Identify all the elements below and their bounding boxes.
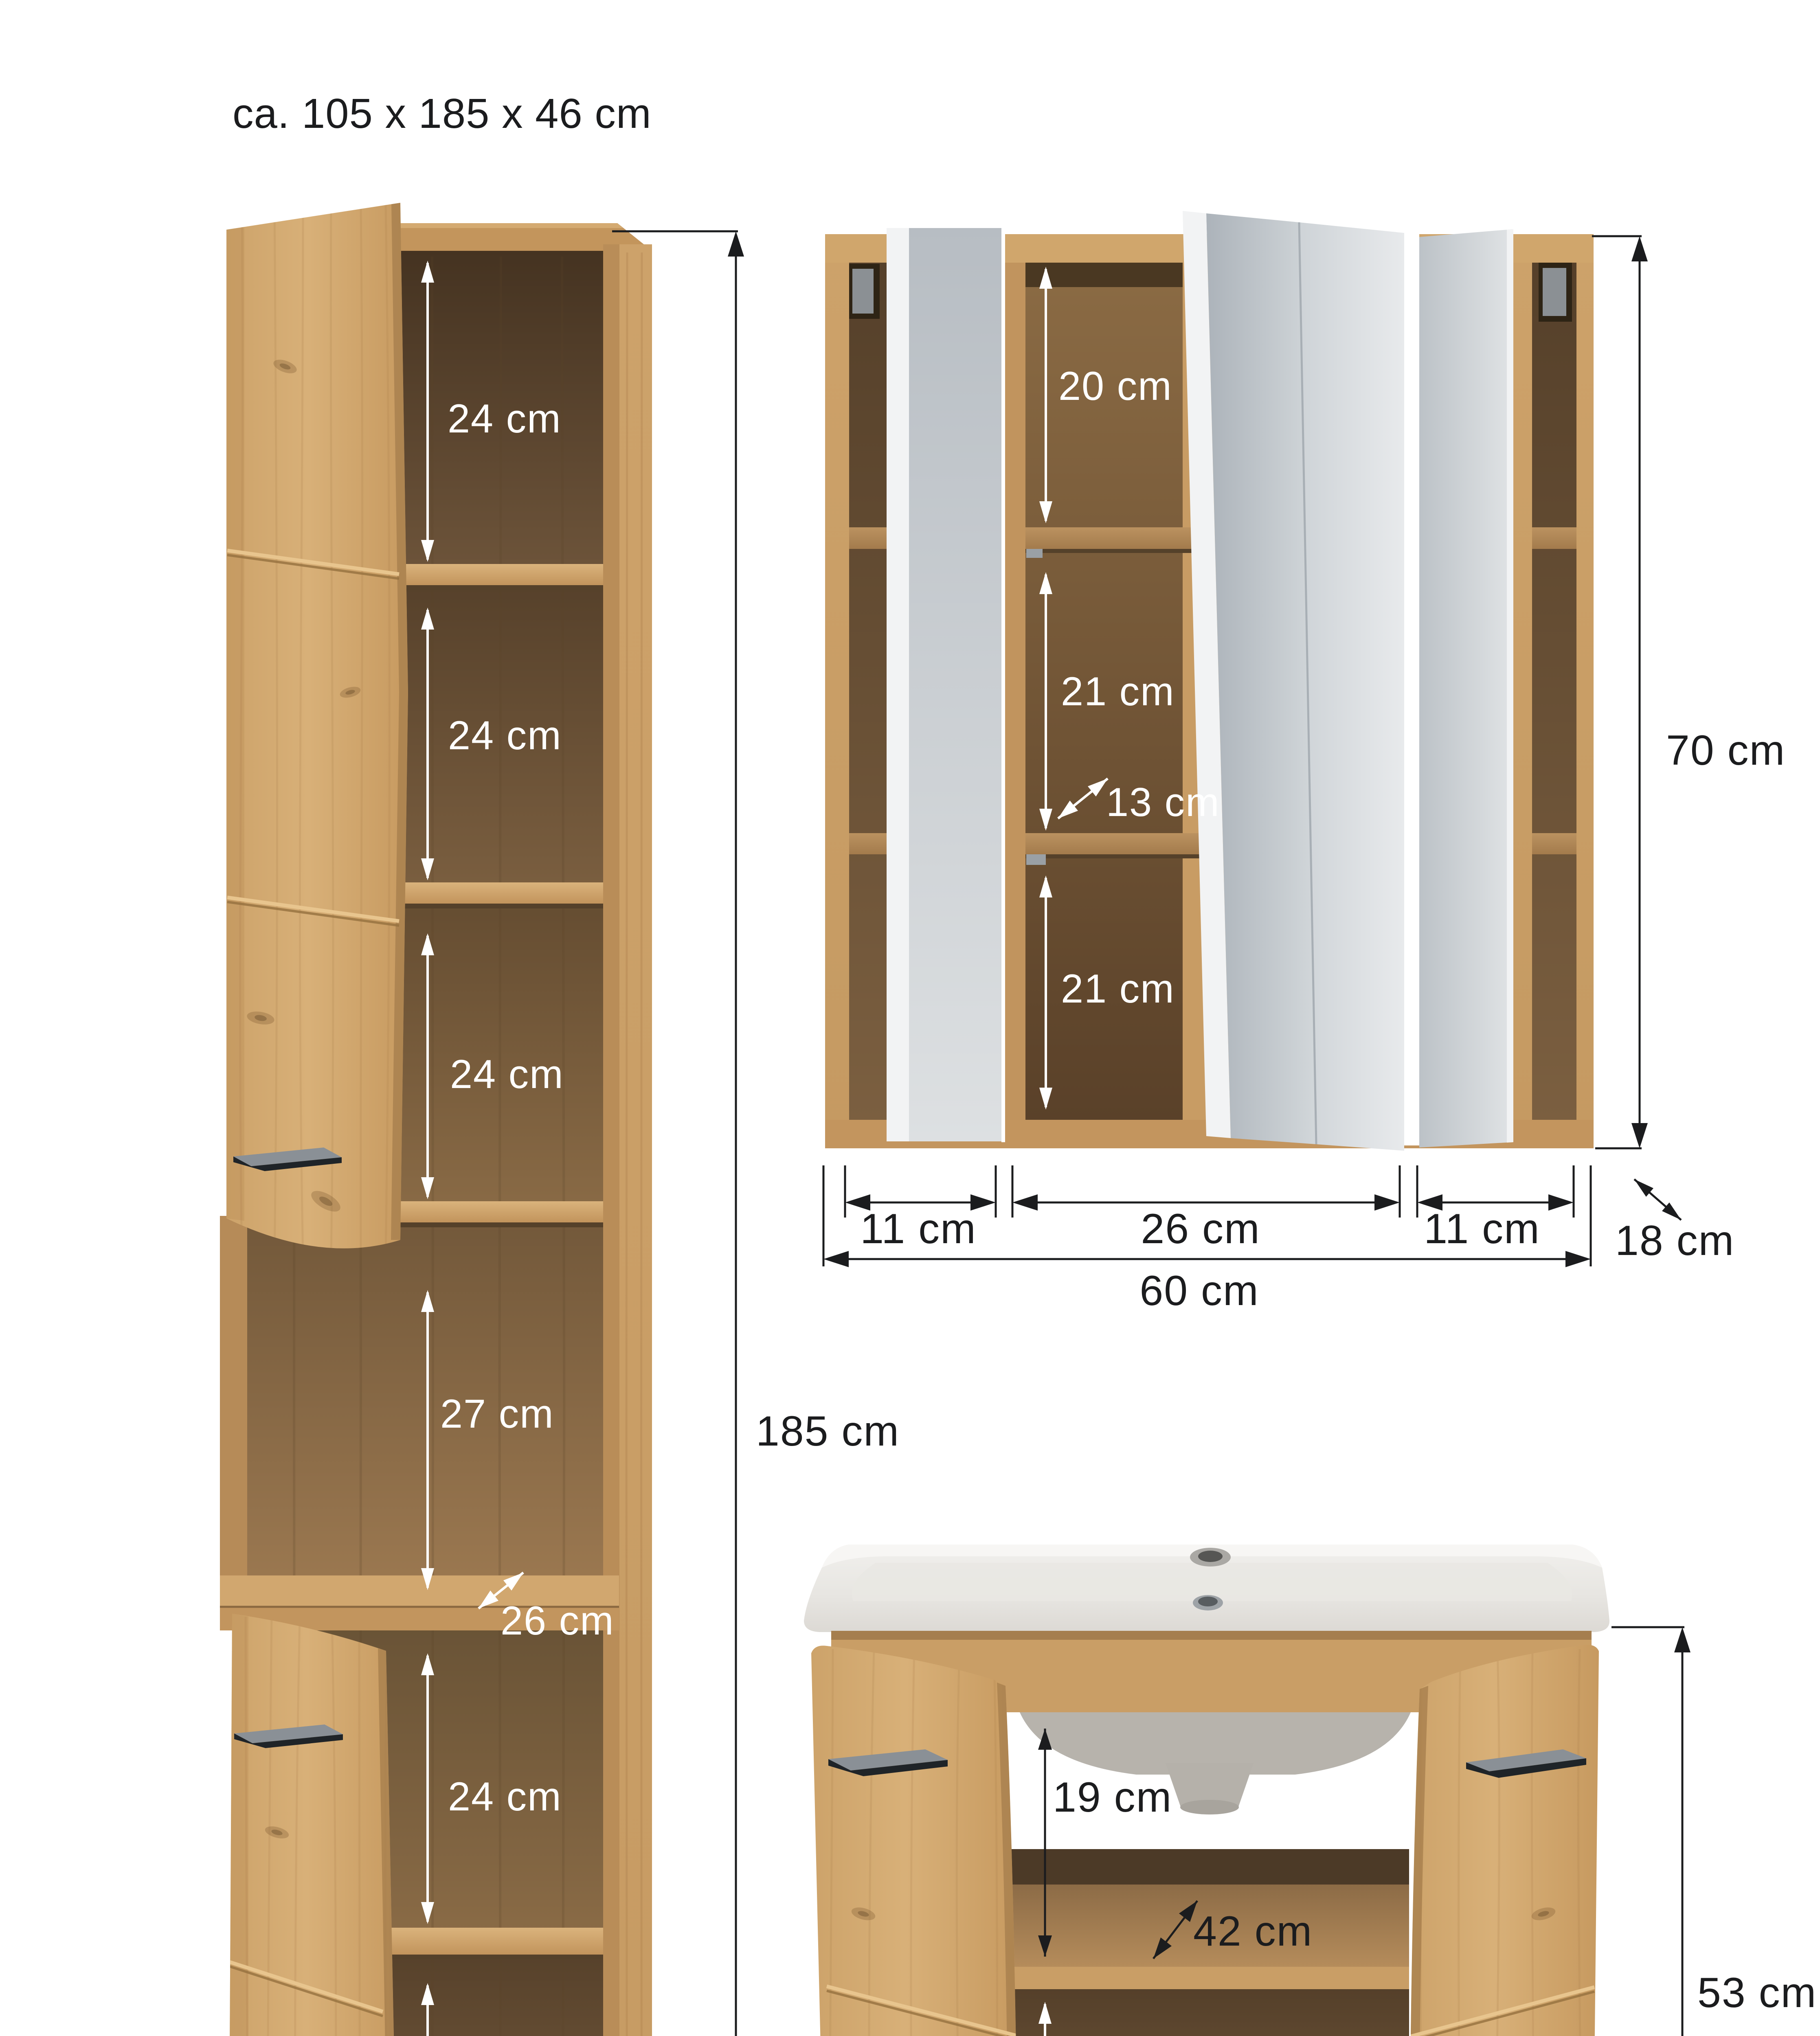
svg-text:26 cm: 26 cm [1141,1205,1260,1253]
svg-text:21 cm: 21 cm [1061,669,1175,714]
svg-text:11 cm: 11 cm [860,1205,977,1253]
svg-text:185 cm: 185 cm [756,1408,900,1455]
svg-text:21 cm: 21 cm [1061,966,1175,1011]
svg-text:26 cm: 26 cm [501,1598,615,1643]
svg-text:13 cm: 13 cm [1106,779,1220,825]
svg-text:27 cm: 27 cm [440,1391,554,1436]
svg-text:24 cm: 24 cm [450,1051,564,1097]
svg-text:42 cm: 42 cm [1193,1908,1313,1955]
svg-text:19 cm: 19 cm [1053,1774,1172,1821]
svg-text:20 cm: 20 cm [1058,363,1172,408]
svg-text:24 cm: 24 cm [448,713,562,758]
svg-text:24 cm: 24 cm [448,1774,562,1819]
svg-text:24 cm: 24 cm [448,396,562,441]
svg-text:60 cm: 60 cm [1139,1267,1259,1314]
svg-text:70 cm: 70 cm [1666,727,1785,774]
svg-text:18 cm: 18 cm [1615,1217,1734,1264]
svg-text:ca. 105 x 185 x 46 cm: ca. 105 x 185 x 46 cm [233,90,652,137]
svg-text:53 cm: 53 cm [1697,1969,1817,2016]
svg-text:11 cm: 11 cm [1424,1205,1540,1253]
